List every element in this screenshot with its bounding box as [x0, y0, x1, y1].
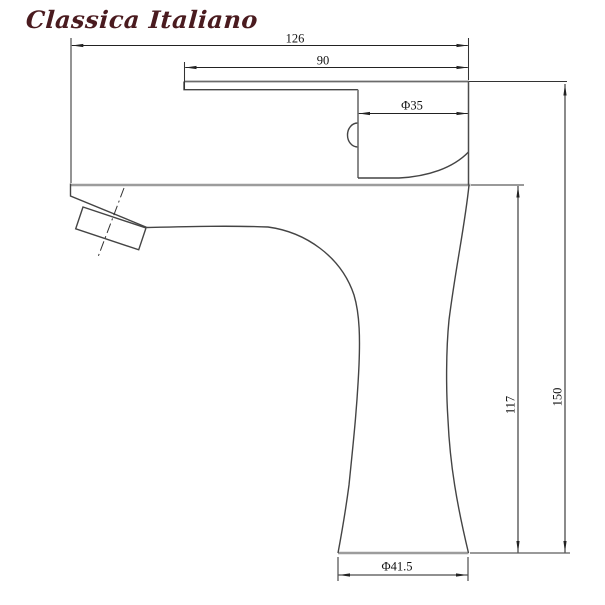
spout-front-edge: [71, 184, 148, 228]
dim-label-cartridge-diameter: Φ35: [401, 99, 423, 114]
cartridge-bottom-fillet: [358, 152, 469, 178]
technical-drawing-page: Classica Italiano 126 90 Φ35 117 150 Φ41…: [0, 0, 605, 605]
dim-label-handle-length: 90: [317, 54, 330, 69]
brand-logo: Classica Italiano: [25, 5, 259, 34]
faucet-outline: [70, 82, 471, 554]
dim-label-overall-height: 150: [551, 388, 566, 407]
technical-drawing-canvas: [0, 0, 605, 605]
dimension-lines: [72, 46, 565, 576]
dim-label-base-diameter: Φ41.5: [381, 560, 412, 575]
aerator-tip: [76, 207, 146, 250]
cartridge-button-bump: [348, 123, 358, 147]
dim-label-overall-width: 126: [286, 32, 305, 47]
spout-underside-stem-left: [147, 226, 359, 553]
handle-lever-bottom: [184, 82, 358, 90]
extension-lines: [71, 38, 570, 581]
body-right-profile: [447, 185, 469, 553]
aerator-centerline: [98, 188, 124, 257]
dim-label-spout-height: 117: [504, 396, 519, 414]
